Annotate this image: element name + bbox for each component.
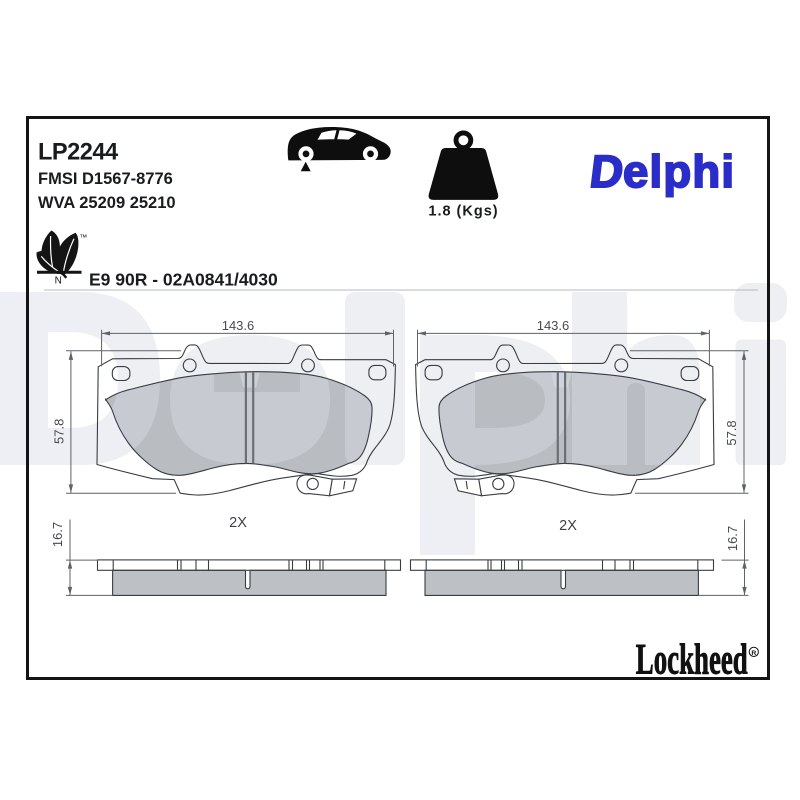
svg-text:E9 90R - 02A0841/4030: E9 90R - 02A0841/4030 bbox=[89, 270, 278, 290]
svg-text:2X: 2X bbox=[559, 518, 577, 534]
svg-text:™: ™ bbox=[79, 233, 87, 242]
svg-text:57.8: 57.8 bbox=[724, 420, 739, 445]
svg-text:FMSI D1567-8776: FMSI D1567-8776 bbox=[38, 170, 173, 188]
svg-text:D: D bbox=[587, 146, 626, 197]
svg-text:N: N bbox=[55, 276, 62, 287]
svg-text:WVA 25209 25210: WVA 25209 25210 bbox=[38, 194, 176, 212]
svg-text:57.8: 57.8 bbox=[51, 419, 66, 444]
svg-text:143.6: 143.6 bbox=[222, 318, 255, 333]
svg-text:143.6: 143.6 bbox=[537, 318, 570, 333]
svg-text:16.7: 16.7 bbox=[725, 526, 740, 551]
svg-text:LP2244: LP2244 bbox=[38, 139, 118, 165]
svg-text:2X: 2X bbox=[229, 515, 247, 531]
svg-text:elphi: elphi bbox=[623, 146, 735, 197]
svg-text:Lockheed: Lockheed bbox=[636, 635, 748, 683]
svg-text:1.8 (Kgs): 1.8 (Kgs) bbox=[428, 203, 498, 219]
svg-text:R: R bbox=[751, 650, 756, 657]
svg-text:16.7: 16.7 bbox=[50, 522, 65, 547]
